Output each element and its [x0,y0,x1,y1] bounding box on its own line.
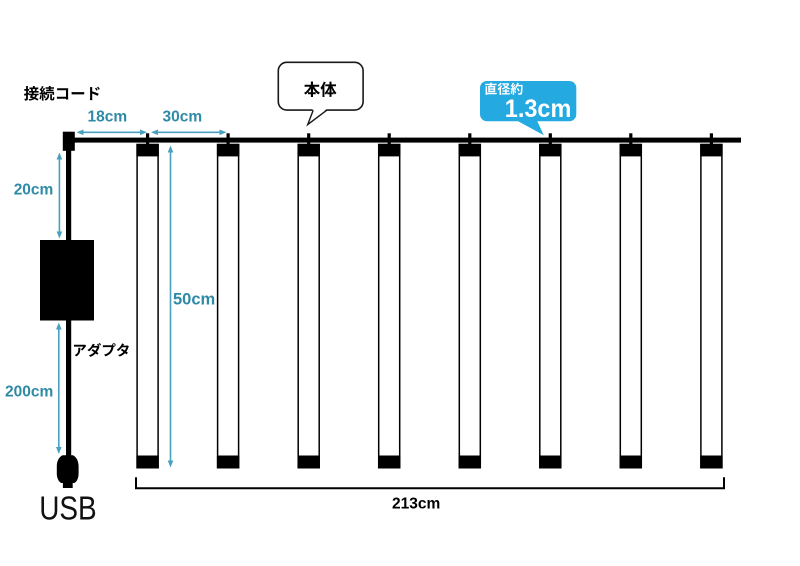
svg-text:213cm: 213cm [392,495,440,512]
svg-text:18cm: 18cm [88,108,128,125]
svg-text:50cm: 50cm [173,290,215,308]
svg-text:200cm: 200cm [5,383,53,400]
svg-text:1.3cm: 1.3cm [505,95,572,123]
svg-text:USB: USB [39,491,96,528]
svg-text:20cm: 20cm [14,181,54,198]
svg-text:30cm: 30cm [163,108,203,125]
